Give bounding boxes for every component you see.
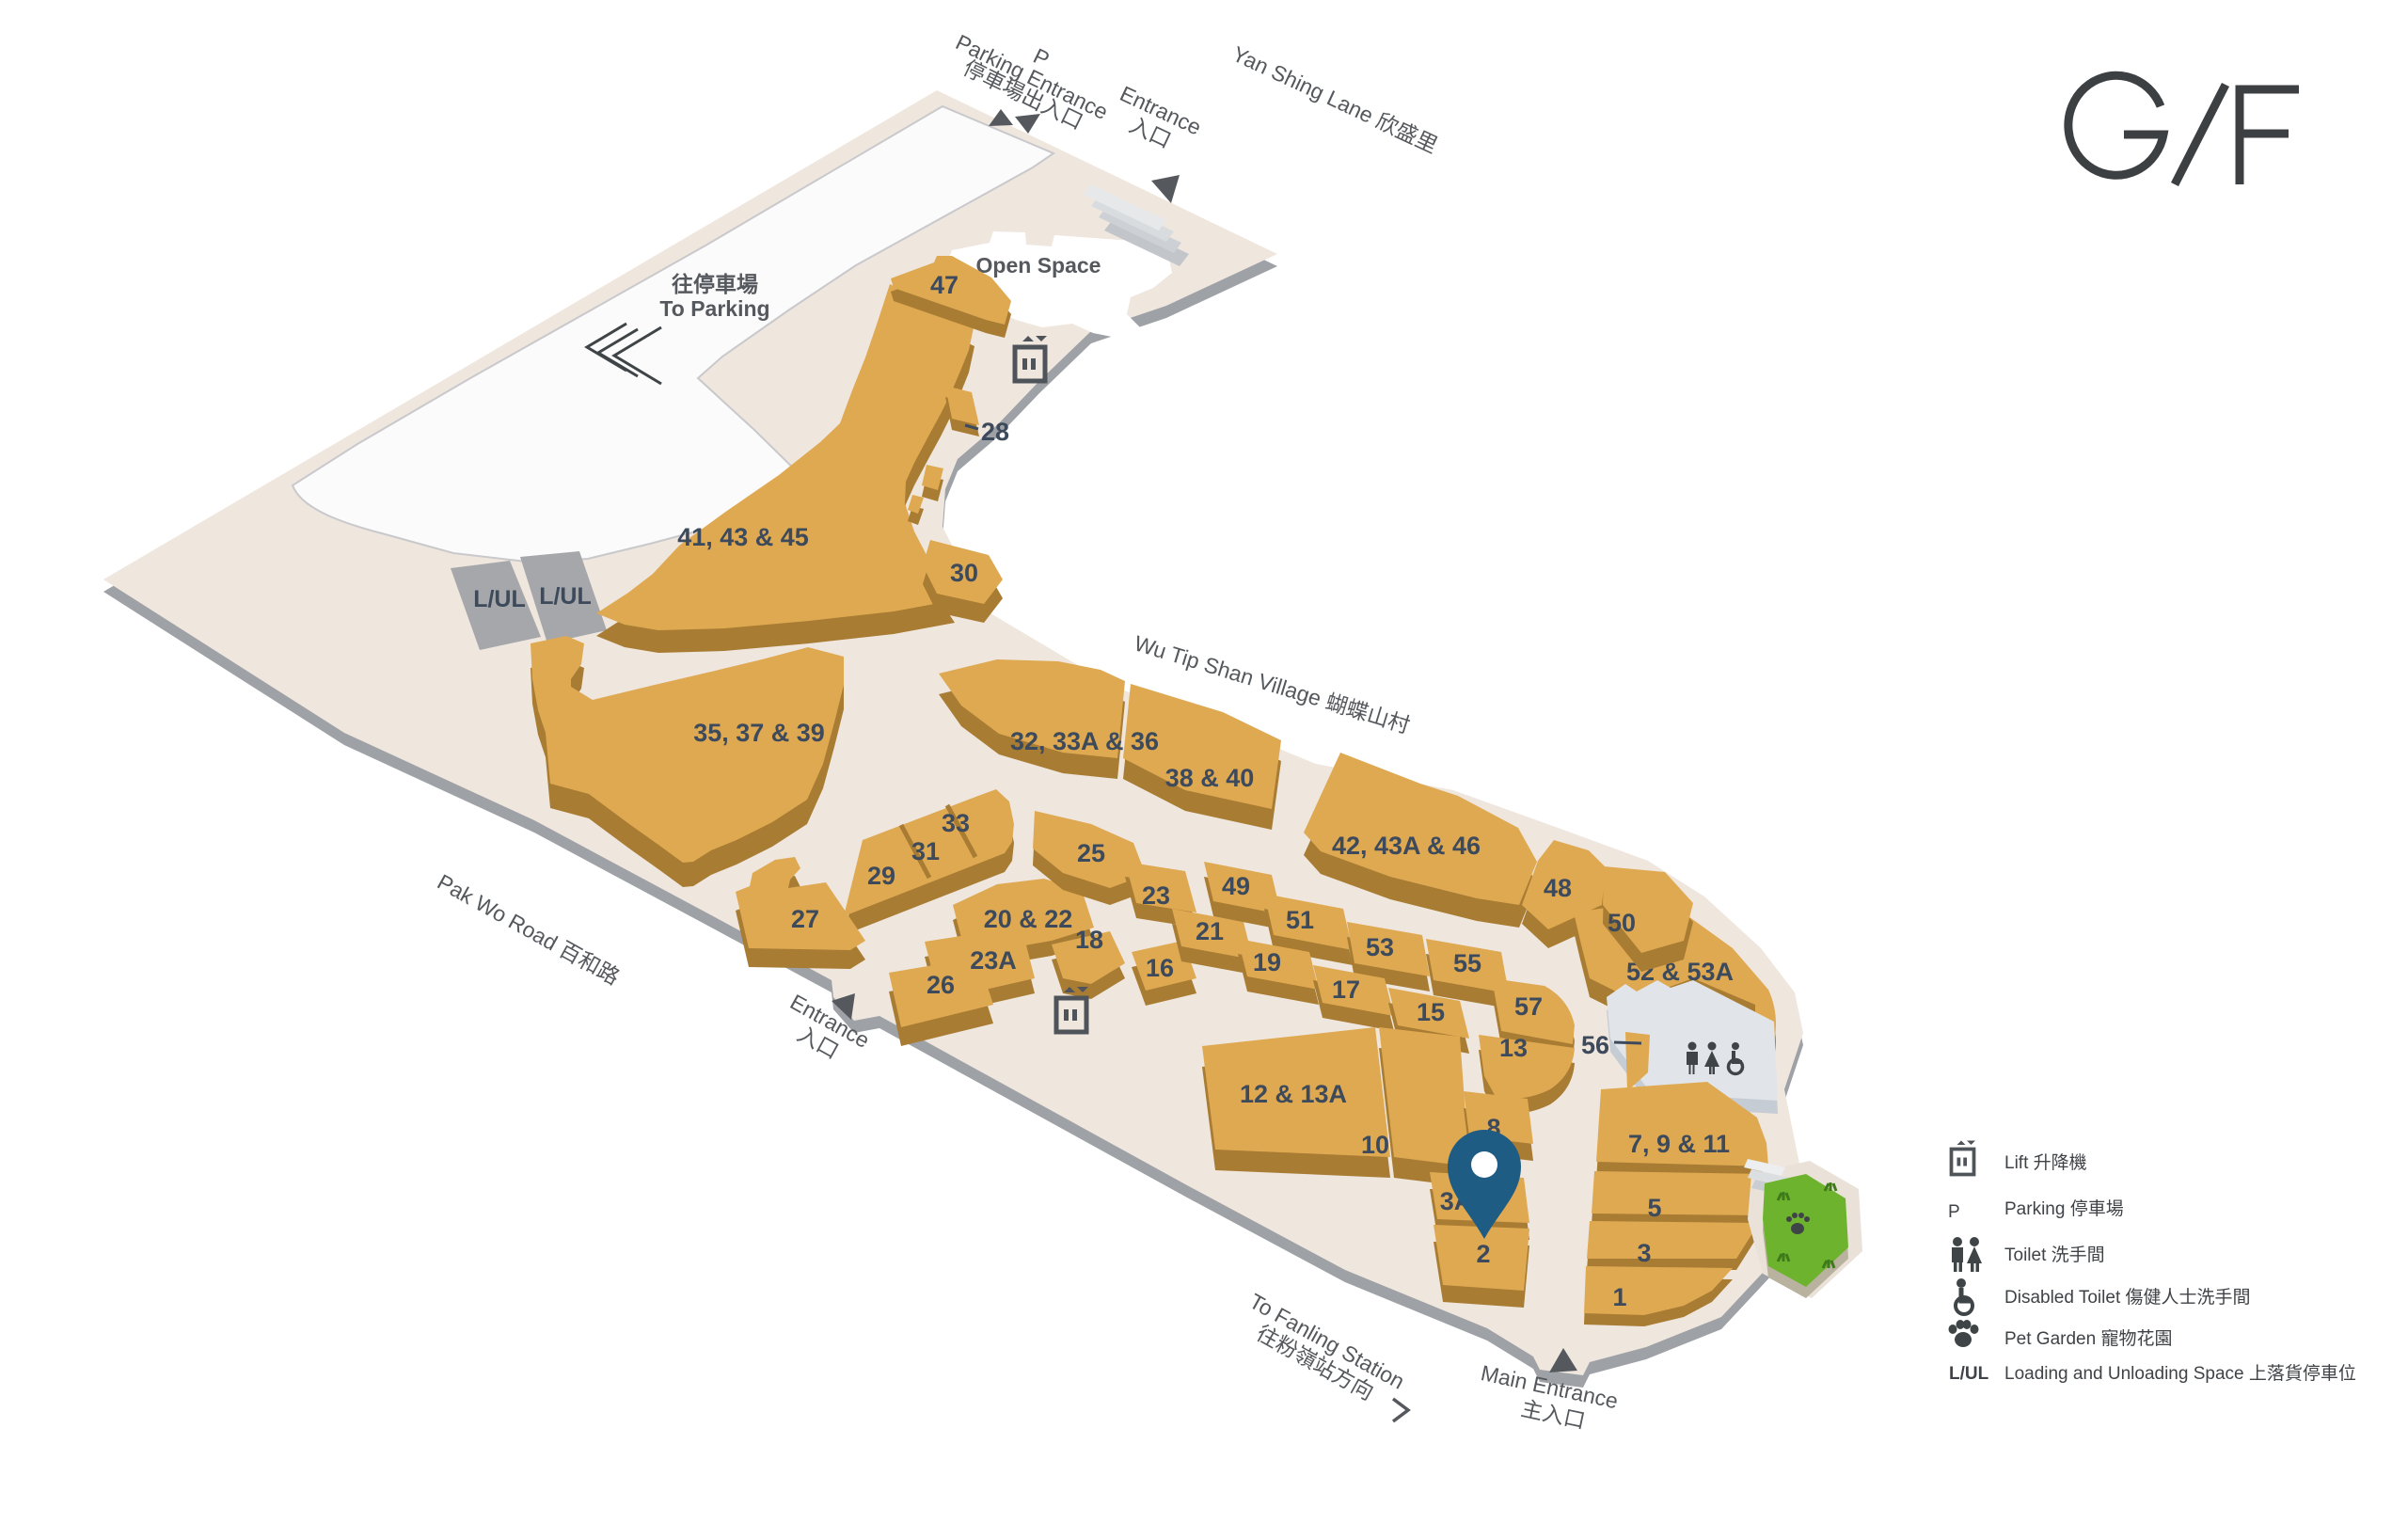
svg-text:42, 43A & 46: 42, 43A & 46 — [1332, 832, 1481, 860]
svg-text:Pak Wo Road 百和路: Pak Wo Road 百和路 — [434, 869, 624, 990]
svg-text:2: 2 — [1476, 1240, 1490, 1268]
svg-text:56: 56 — [1581, 1031, 1609, 1059]
svg-text:Pet Garden 寵物花園: Pet Garden 寵物花園 — [2004, 1328, 2172, 1349]
svg-text:To Parking: To Parking — [659, 296, 769, 321]
svg-text:28: 28 — [981, 418, 1009, 446]
svg-text:L/UL: L/UL — [539, 583, 592, 610]
svg-text:25: 25 — [1077, 839, 1105, 867]
svg-text:17: 17 — [1332, 976, 1360, 1004]
svg-text:32, 33A & 36: 32, 33A & 36 — [1010, 727, 1159, 755]
svg-text:53: 53 — [1366, 933, 1394, 961]
svg-text:P: P — [1948, 1202, 1960, 1222]
svg-text:15: 15 — [1417, 998, 1445, 1026]
svg-text:33: 33 — [942, 809, 970, 837]
svg-text:41, 43 & 45: 41, 43 & 45 — [677, 523, 809, 551]
svg-text:51: 51 — [1286, 906, 1314, 934]
svg-text:16: 16 — [1146, 954, 1174, 982]
svg-text:50: 50 — [1608, 909, 1636, 937]
svg-text:18: 18 — [1075, 926, 1103, 954]
svg-text:26: 26 — [927, 971, 955, 999]
svg-text:21: 21 — [1196, 917, 1224, 945]
svg-text:49: 49 — [1222, 872, 1250, 900]
svg-text:往停車場: 往停車場 — [672, 272, 758, 296]
svg-text:Toilet 洗手間: Toilet 洗手間 — [2004, 1245, 2105, 1265]
svg-text:30: 30 — [950, 559, 978, 587]
svg-text:38 & 40: 38 & 40 — [1165, 764, 1255, 792]
svg-text:57: 57 — [1514, 992, 1543, 1021]
svg-text:Yan Shing Lane 欣盛里: Yan Shing Lane 欣盛里 — [1228, 41, 1441, 158]
svg-text:Open Space: Open Space — [976, 253, 1101, 278]
svg-text:L/UL: L/UL — [473, 586, 526, 612]
svg-text:Disabled Toilet 傷健人士洗手間: Disabled Toilet 傷健人士洗手間 — [2004, 1287, 2251, 1308]
svg-text:19: 19 — [1253, 948, 1281, 976]
svg-text:48: 48 — [1544, 874, 1572, 902]
svg-text:7, 9 & 11: 7, 9 & 11 — [1628, 1130, 1730, 1158]
svg-text:1: 1 — [1612, 1283, 1626, 1311]
svg-text:10: 10 — [1361, 1131, 1389, 1159]
svg-text:23: 23 — [1142, 881, 1170, 910]
svg-text:5: 5 — [1647, 1194, 1661, 1222]
svg-text:47: 47 — [930, 271, 958, 299]
svg-text:Lift 升降機: Lift 升降機 — [2004, 1152, 2087, 1173]
svg-text:20 & 22: 20 & 22 — [984, 905, 1073, 933]
svg-text:Parking 停車場: Parking 停車場 — [2004, 1198, 2124, 1219]
svg-text:L/UL: L/UL — [1949, 1364, 1989, 1384]
svg-text:13: 13 — [1499, 1034, 1528, 1062]
svg-text:31: 31 — [911, 837, 940, 865]
svg-text:3: 3 — [1637, 1239, 1651, 1267]
svg-text:Loading and Unloading Space 上落: Loading and Unloading Space 上落貨停車位 — [2004, 1363, 2356, 1384]
svg-text:23A: 23A — [970, 946, 1017, 975]
svg-text:27: 27 — [791, 905, 819, 933]
svg-text:35, 37 & 39: 35, 37 & 39 — [693, 719, 825, 747]
svg-text:29: 29 — [867, 862, 895, 890]
svg-text:12 & 13A: 12 & 13A — [1240, 1080, 1347, 1108]
svg-text:55: 55 — [1453, 949, 1481, 977]
